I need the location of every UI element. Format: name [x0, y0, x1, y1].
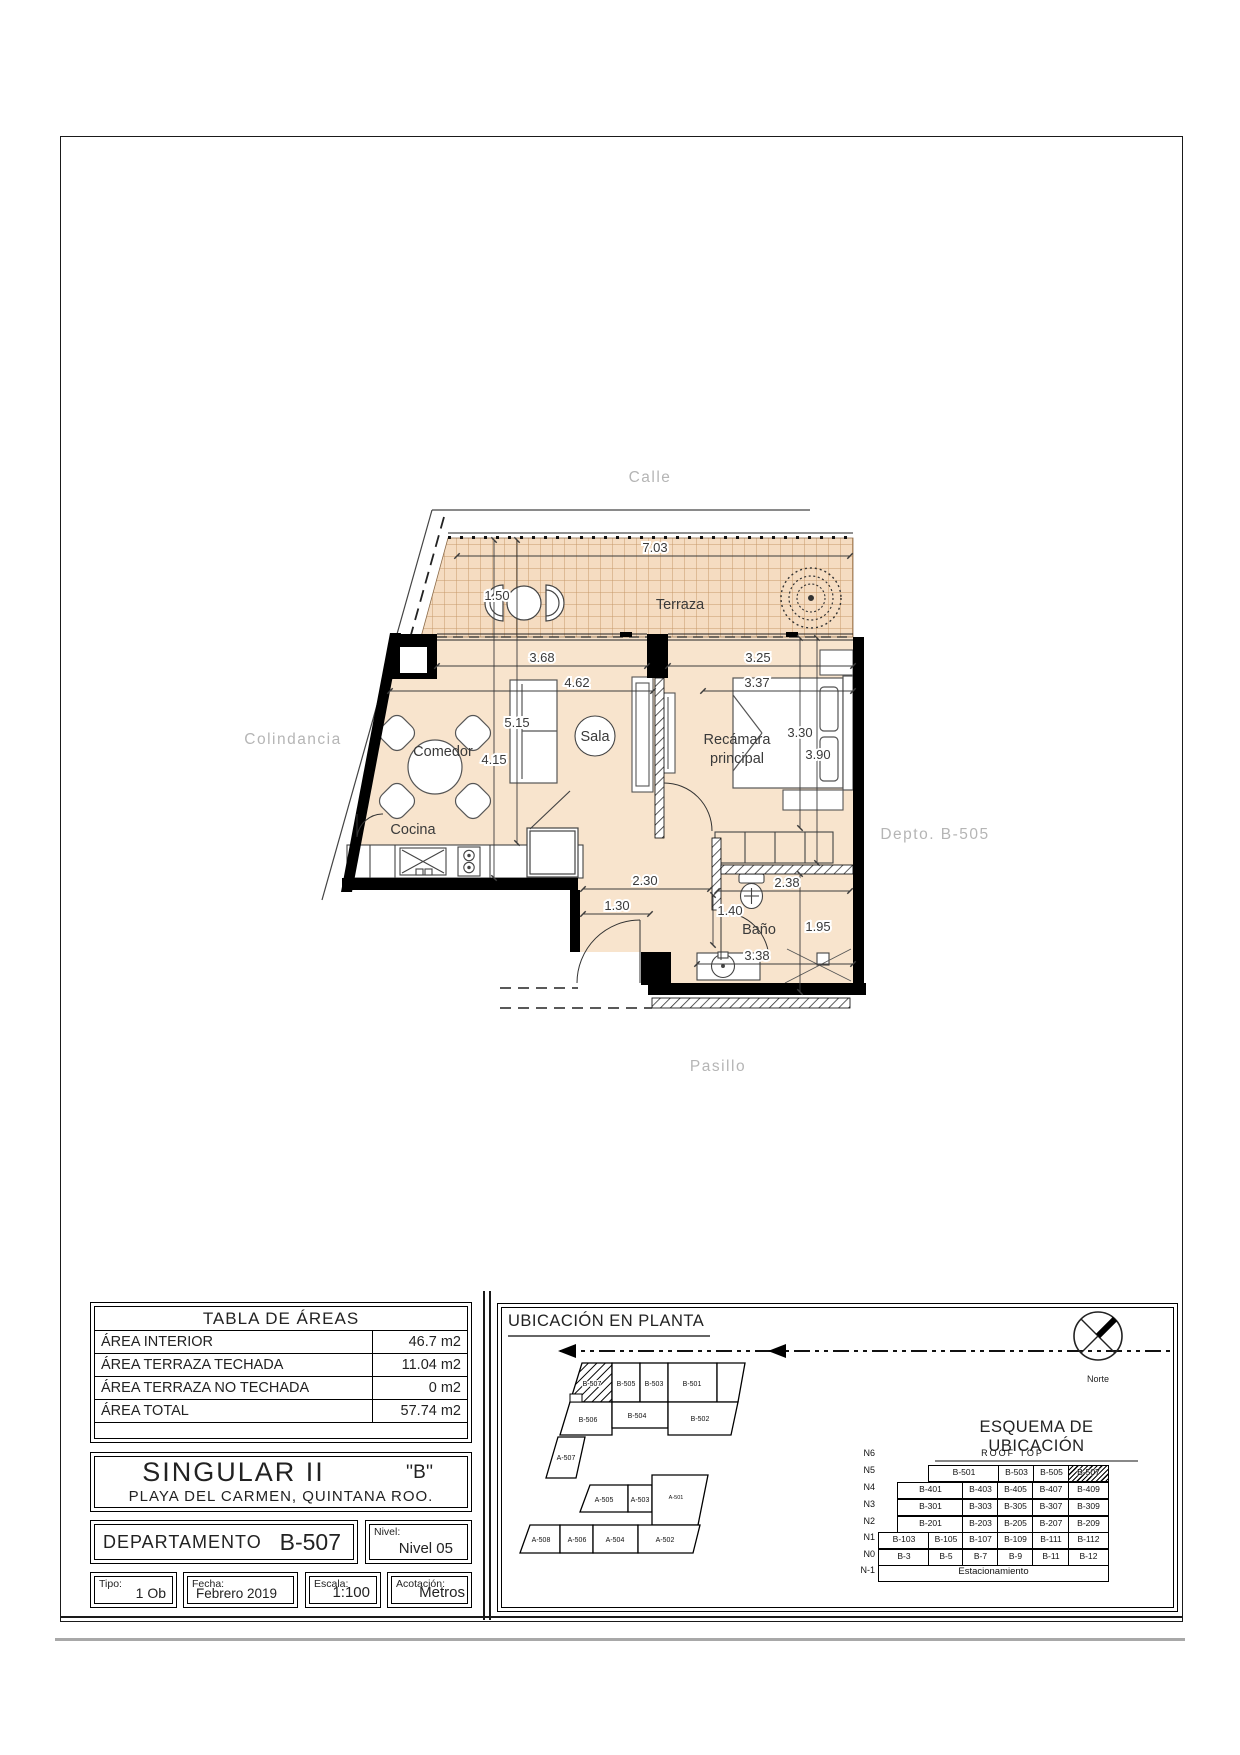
area-value: 0 m2 [372, 1377, 467, 1399]
unit-label: A-507 [557, 1455, 576, 1462]
room-label-bano: Baño [742, 922, 776, 938]
unit-label: B-505 [617, 1381, 636, 1388]
norte-label: Norte [1087, 1374, 1109, 1384]
tower-label: ''B'' [372, 1459, 467, 1487]
context-label-colindancia: Colindancia [244, 731, 342, 748]
level-label: N5 [855, 1465, 875, 1475]
unit-label: A-504 [606, 1537, 625, 1544]
areas-table: TABLA DE ÁREAS ÁREA INTERIOR 46.7 m2 ÁRE… [90, 1302, 472, 1443]
tipo-value: 1 Ob [136, 1585, 166, 1601]
context-label-depto-b505: Depto. B-505 [880, 826, 989, 843]
terrace-table-icon [507, 586, 541, 620]
stack-cell: B-307 [1032, 1499, 1070, 1516]
nivel-label: Nivel: [374, 1526, 400, 1538]
dim-terraza-fondo: 1.50 [484, 588, 509, 603]
unit-label: A-506 [568, 1537, 587, 1544]
kitchen-sink-icon [400, 848, 446, 875]
stack-cell-rooftop: ROOF TOP [915, 1448, 1110, 1458]
dim-terraza-ancho: 7.03 [642, 540, 667, 555]
unit-label: B-501 [683, 1381, 702, 1388]
context-label-pasillo: Pasillo [690, 1058, 746, 1075]
acotacion-box: Acotación: Metros [387, 1572, 472, 1608]
stack-cell: B-9 [997, 1549, 1034, 1566]
area-value: 46.7 m2 [372, 1331, 467, 1353]
nivel-box: Nivel: Nivel 05 [365, 1520, 472, 1564]
departamento-label: DEPARTAMENTO [95, 1532, 280, 1553]
page-shadow-line [55, 1638, 1185, 1641]
unit-label: B-502 [691, 1416, 710, 1423]
unit-label: B-504 [628, 1413, 647, 1420]
stack-cell: B-11 [1032, 1549, 1070, 1566]
dim-pasillo-2: 1.30 [604, 898, 629, 913]
stack-cell: B-401 [897, 1482, 964, 1499]
terrace-area: Terraza [421, 533, 853, 637]
boundary-dashes [500, 988, 652, 1008]
nightstand-icon [820, 650, 853, 675]
departamento-box: DEPARTAMENTO B-507 [90, 1520, 358, 1564]
stack-cell: B-205 [997, 1516, 1034, 1533]
dim-bano-fondo: 1.95 [805, 919, 830, 934]
stack-cell: B-301 [897, 1499, 964, 1516]
building-edge [717, 1363, 745, 1402]
context-label-calle: Calle [629, 469, 672, 486]
stack-cell: B-107 [962, 1532, 999, 1549]
nivel-value: Nivel 05 [399, 1540, 453, 1557]
stove-icon [458, 847, 480, 876]
titleblock-divider-right [489, 1291, 491, 1620]
dim-recamara-fondo-2: 3.90 [805, 747, 830, 762]
dim-recamara-ancho: 3.37 [744, 675, 769, 690]
room-label-recamara-1: Recámara [704, 732, 772, 748]
unit-label: A-502 [656, 1537, 675, 1544]
wall-bottom-left [342, 878, 578, 890]
area-row-total: ÁREA TOTAL 57.74 m2 [95, 1400, 467, 1423]
stack-cell-current-unit: B-507 [1068, 1465, 1109, 1482]
stack-cell: B-405 [997, 1482, 1034, 1499]
fecha-value: Febrero 2019 [196, 1586, 277, 1601]
titleblock-divider-left [483, 1291, 485, 1620]
room-label-comedor: Comedor [413, 744, 473, 760]
room-label-terraza: Terraza [656, 597, 705, 613]
dim-recamara-frente: 3.25 [745, 650, 770, 665]
dim-sala-ancho: 4.62 [564, 675, 589, 690]
area-row-terraza-techada: ÁREA TERRAZA TECHADA 11.04 m2 [95, 1354, 467, 1377]
stack-cell: B-109 [997, 1532, 1034, 1549]
dim-acceso: 3.38 [744, 948, 769, 963]
level-label: N1 [855, 1532, 875, 1542]
area-value: 57.74 m2 [372, 1400, 467, 1422]
room-label-cocina: Cocina [390, 822, 436, 838]
wall-entry-notch [400, 647, 427, 673]
stack-cell: B-7 [962, 1549, 999, 1566]
area-value: 11.04 m2 [372, 1354, 467, 1376]
stack-cell: B-501 [928, 1465, 1000, 1482]
stack-cell-estacionamiento: Estacionamiento [878, 1565, 1109, 1582]
stack-cell: B-5 [928, 1549, 964, 1566]
dim-recamara-fondo-1: 3.30 [787, 725, 812, 740]
unit-notch [570, 1394, 582, 1402]
stack-cell: B-201 [897, 1516, 964, 1533]
stack-cell: B-403 [962, 1482, 999, 1499]
unit-label: A-508 [532, 1537, 551, 1544]
closet-icon [715, 832, 833, 863]
stack-cell: B-103 [878, 1532, 930, 1549]
wall-mid-column [647, 634, 668, 678]
unit-label: B-507 [583, 1381, 602, 1388]
dim-bano-largo: 2.38 [774, 875, 799, 890]
fecha-box: Fecha: Febrero 2019 [183, 1572, 298, 1608]
level-label: N6 [855, 1448, 875, 1458]
unit-label: A-505 [595, 1497, 614, 1504]
dim-bano-ancho: 1.40 [717, 903, 742, 918]
escala-box: Escala: 1:100 [305, 1572, 381, 1608]
bench-icon [783, 790, 843, 810]
dim-fondo-2: 4.15 [481, 752, 506, 767]
stack-cell: B-407 [1032, 1482, 1070, 1499]
stack-cell: B-209 [1068, 1516, 1109, 1533]
stack-cell: B-12 [1068, 1549, 1109, 1566]
floor-plan: Calle Colindancia Depto. B-505 Pasillo T… [60, 400, 1180, 1100]
level-label: N2 [855, 1516, 875, 1526]
area-row-interior: ÁREA INTERIOR 46.7 m2 [95, 1331, 467, 1354]
area-row-terraza-no-techada: ÁREA TERRAZA NO TECHADA 0 m2 [95, 1377, 467, 1400]
stack-cell: B-112 [1068, 1532, 1109, 1549]
location-key-plan: B-507 B-505 B-503 B-501 B-506 B-504 B-50… [500, 1332, 780, 1568]
location-label: PLAYA DEL CARMEN, QUINTANA ROO. [95, 1487, 467, 1507]
wall-entry-block [641, 952, 671, 985]
wall-right [853, 637, 864, 995]
wall-vertical-entry [570, 890, 580, 952]
stack-cell: B-503 [998, 1465, 1035, 1482]
stack-cell: B-303 [962, 1499, 999, 1516]
unit-label: B-506 [579, 1417, 598, 1424]
level-label: N3 [855, 1499, 875, 1509]
stack-cell: B-207 [1032, 1516, 1070, 1533]
stack-cell: B-105 [928, 1532, 964, 1549]
area-label: ÁREA TOTAL [95, 1400, 372, 1422]
stacking-diagram: N6 N5 N4 N3 N2 N1 N0 N-1 ROOF TOP B-501 … [855, 1446, 1117, 1588]
escala-value: 1:100 [332, 1584, 370, 1601]
acotacion-value: Metros [419, 1584, 465, 1601]
unit-label: B-503 [645, 1381, 664, 1388]
sheet-border-bottom-double [60, 1616, 1183, 1618]
stack-cell: B-111 [1032, 1532, 1070, 1549]
room-label-recamara-2: principal [710, 751, 764, 767]
level-label: N-1 [855, 1565, 875, 1575]
level-label: N0 [855, 1549, 875, 1559]
unit-label: A-501 [669, 1495, 684, 1501]
dim-frente-izq: 3.68 [529, 650, 554, 665]
area-label: ÁREA TERRAZA TECHADA [95, 1354, 372, 1376]
stack-cell: B-3 [878, 1549, 930, 1566]
tipo-label: Tipo: [99, 1578, 122, 1590]
wall-bottom [648, 983, 866, 995]
stack-cell: B-203 [962, 1516, 999, 1533]
stack-cell: B-309 [1068, 1499, 1109, 1516]
departamento-value: B-507 [280, 1529, 353, 1556]
north-arrow-icon: Norte [1063, 1306, 1135, 1390]
dim-fondo-1: 5.15 [504, 715, 529, 730]
unit-label: A-503 [631, 1497, 650, 1504]
room-label-sala: Sala [580, 729, 610, 745]
area-label: ÁREA TERRAZA NO TECHADA [95, 1377, 372, 1399]
tipo-box: Tipo: 1 Ob [90, 1572, 177, 1608]
project-box: SINGULAR II ''B'' PLAYA DEL CARMEN, QUIN… [90, 1452, 472, 1512]
area-label: ÁREA INTERIOR [95, 1331, 372, 1353]
project-title: SINGULAR II [95, 1457, 372, 1487]
stack-cell: B-305 [997, 1499, 1034, 1516]
stack-cell: B-409 [1068, 1482, 1109, 1499]
level-label: N4 [855, 1482, 875, 1492]
areas-table-title: TABLA DE ÁREAS [95, 1307, 467, 1331]
dim-pasillo-1: 2.30 [632, 873, 657, 888]
stack-cell: B-505 [1033, 1465, 1070, 1482]
